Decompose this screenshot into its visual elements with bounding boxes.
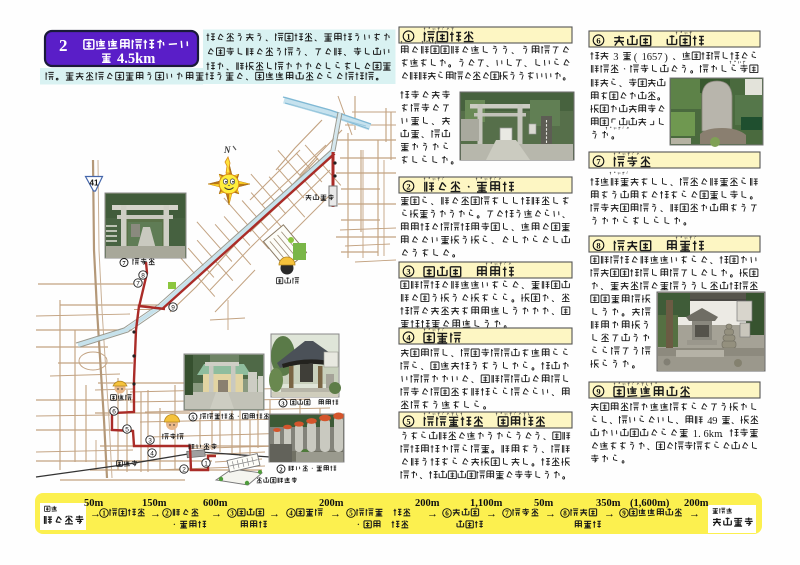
svg-text:7: 7 <box>657 52 662 63</box>
svg-text:9: 9 <box>622 510 626 518</box>
svg-text:→: → <box>150 508 161 520</box>
svg-text:5: 5 <box>406 416 410 426</box>
svg-text:5: 5 <box>125 426 129 433</box>
svg-text:9: 9 <box>171 304 175 311</box>
svg-text:7: 7 <box>136 280 140 287</box>
svg-text:5: 5 <box>349 510 353 518</box>
svg-text:1: 1 <box>102 510 106 518</box>
svg-text:2: 2 <box>182 466 186 473</box>
svg-text:2: 2 <box>406 181 410 191</box>
svg-text:7: 7 <box>505 510 509 518</box>
svg-text:8: 8 <box>596 240 600 250</box>
svg-text:8: 8 <box>141 272 145 279</box>
svg-text:3: 3 <box>406 266 410 276</box>
svg-text:→: → <box>486 508 497 520</box>
svg-text:2: 2 <box>279 466 282 473</box>
svg-text:m: m <box>714 429 722 440</box>
svg-text:3: 3 <box>613 52 618 63</box>
svg-text:→: → <box>269 508 280 520</box>
svg-text:): ) <box>664 52 668 64</box>
svg-text:.: . <box>698 429 701 440</box>
svg-text:4: 4 <box>289 510 293 518</box>
svg-text:→: → <box>604 508 615 520</box>
svg-text:3: 3 <box>148 437 152 444</box>
svg-text:→: → <box>211 508 222 520</box>
svg-text:→: → <box>330 508 341 520</box>
svg-text:(: ( <box>634 52 638 64</box>
svg-text:9: 9 <box>596 386 600 396</box>
svg-text:2: 2 <box>165 510 169 518</box>
svg-text:N: N <box>223 145 231 155</box>
svg-text:(1,600m): (1,600m) <box>630 498 670 509</box>
svg-text:4.5km: 4.5km <box>117 51 155 67</box>
svg-text:2: 2 <box>59 36 68 55</box>
svg-text:6: 6 <box>112 408 116 415</box>
svg-text:6: 6 <box>445 510 449 518</box>
svg-text:→: → <box>689 508 700 520</box>
svg-text:4: 4 <box>150 450 154 457</box>
svg-text:9: 9 <box>712 416 717 427</box>
svg-text:→: → <box>427 508 438 520</box>
svg-text:1: 1 <box>204 460 208 467</box>
svg-text:6: 6 <box>596 35 600 45</box>
svg-text:3: 3 <box>230 510 234 518</box>
svg-text:1: 1 <box>406 31 410 41</box>
svg-text:8: 8 <box>563 510 567 518</box>
svg-text:→: → <box>545 508 556 520</box>
svg-text:41: 41 <box>90 179 99 188</box>
